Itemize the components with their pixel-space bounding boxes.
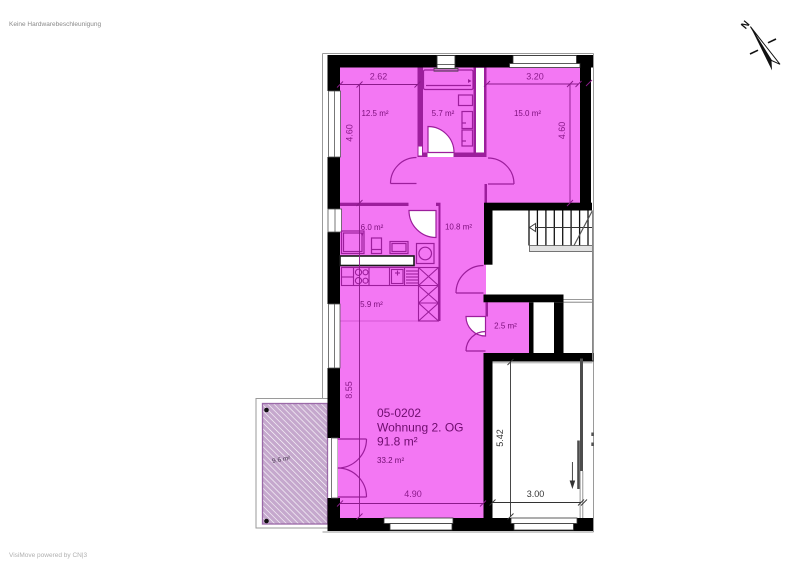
svg-text:5.7 m²: 5.7 m² [432,109,455,118]
svg-text:4.90: 4.90 [404,489,422,499]
svg-text:91.8 m²: 91.8 m² [377,435,418,449]
svg-text:5.9 m²: 5.9 m² [360,300,383,309]
svg-text:Keine Hardwarebeschleunigung: Keine Hardwarebeschleunigung [9,21,102,28]
svg-text:2.62: 2.62 [370,72,388,82]
svg-text:Wohnung 2. OG: Wohnung 2. OG [377,421,464,435]
svg-text:3.00: 3.00 [527,489,545,499]
svg-text:10.8 m²: 10.8 m² [445,223,472,232]
svg-text:15.0 m²: 15.0 m² [514,109,541,118]
svg-text:VisiMove powered by CN|3: VisiMove powered by CN|3 [9,552,88,559]
svg-text:5.42: 5.42 [495,429,505,447]
svg-text:6.0 m²: 6.0 m² [361,223,384,232]
svg-text:3.20: 3.20 [526,72,544,82]
svg-text:8.55: 8.55 [344,381,354,399]
svg-text:4.60: 4.60 [557,122,567,140]
svg-text:12.5 m²: 12.5 m² [361,109,388,118]
svg-text:4.60: 4.60 [345,124,355,142]
svg-text:33.2 m²: 33.2 m² [377,456,404,465]
svg-text:05-0202: 05-0202 [377,406,421,420]
svg-text:2.5 m²: 2.5 m² [494,322,517,331]
